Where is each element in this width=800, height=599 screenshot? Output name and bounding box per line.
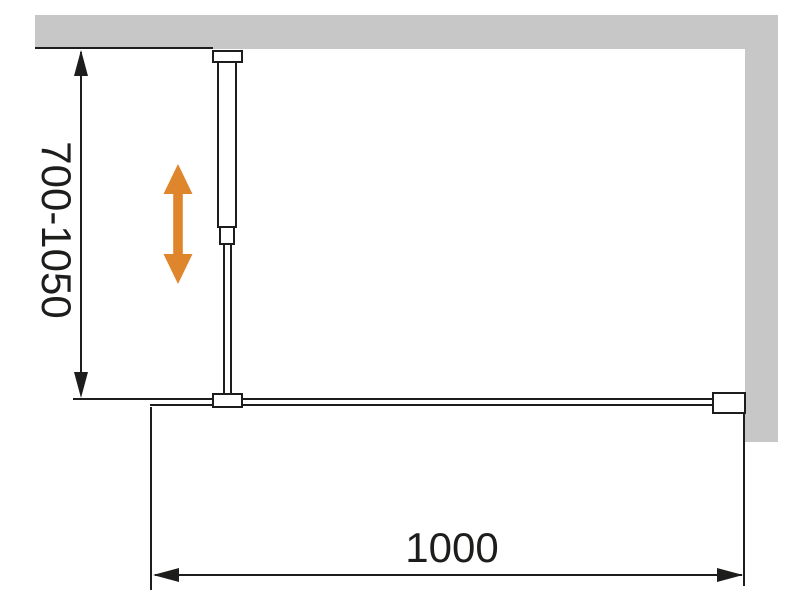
wall-top bbox=[35, 15, 778, 49]
glass-clamp bbox=[212, 393, 243, 408]
adjustment-collar bbox=[219, 226, 235, 245]
arrowhead-up-icon bbox=[74, 50, 88, 76]
wall-bracket-right bbox=[712, 392, 746, 414]
diagram-canvas: 700-1050 1000 bbox=[0, 0, 800, 599]
width-dim-extension-line-left bbox=[150, 407, 152, 590]
height-dim-line bbox=[80, 52, 82, 374]
arrowhead-left-icon bbox=[153, 568, 179, 582]
adjust-double-arrow-icon bbox=[163, 164, 193, 284]
wall-bracket-top bbox=[212, 50, 243, 63]
support-tube-upper bbox=[217, 61, 237, 228]
width-dim-label: 1000 bbox=[352, 527, 552, 569]
height-dim-extension-line-wall bbox=[35, 47, 213, 49]
support-rod-lower bbox=[223, 243, 232, 395]
width-dim-extension-line-right bbox=[743, 414, 745, 586]
arrowhead-down-icon bbox=[74, 372, 88, 398]
glass-panel-top-edge bbox=[73, 398, 745, 400]
arrowhead-right-icon bbox=[717, 568, 743, 582]
height-dim-label: 700-1050 bbox=[35, 140, 77, 320]
wall-right bbox=[745, 49, 778, 442]
width-dim-line bbox=[155, 574, 742, 576]
